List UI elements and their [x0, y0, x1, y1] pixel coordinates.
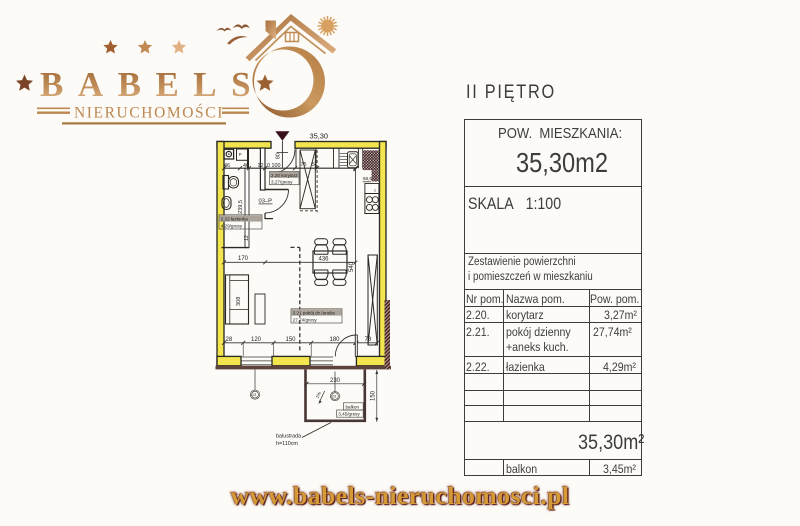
svg-text:2.20 korytarz: 2.20 korytarz [271, 173, 298, 178]
svg-text:balkon: balkon [346, 404, 360, 409]
svg-text:h=110cm: h=110cm [276, 441, 298, 447]
svg-text:170: 170 [238, 256, 249, 262]
svg-text:3,45/gresy: 3,45/gresy [338, 412, 360, 417]
svg-text:68,5: 68,5 [363, 176, 372, 181]
svg-text:28: 28 [226, 337, 233, 343]
svg-text:120: 120 [251, 337, 262, 343]
svg-text:2.21 pokój dz./aneks: 2.21 pokój dz./aneks [293, 311, 336, 316]
svg-text:NIERUCHOMOŚCI: NIERUCHOMOŚCI [74, 105, 224, 122]
svg-text:P: P [239, 152, 242, 157]
svg-text:balustrada: balustrada [276, 434, 301, 440]
svg-text:0 100: 0 100 [267, 163, 281, 169]
svg-text:z: z [374, 188, 376, 193]
svg-text:35,30: 35,30 [310, 132, 329, 141]
svg-text:3,27/gresy: 3,27/gresy [271, 179, 293, 184]
svg-text:308: 308 [236, 297, 242, 306]
svg-text:4,29/gresy: 4,29/gresy [221, 223, 243, 228]
svg-text:03: 03 [332, 395, 336, 399]
svg-text:436: 436 [319, 257, 330, 263]
svg-text:540: 540 [349, 261, 355, 272]
svg-text:12: 12 [244, 235, 250, 241]
svg-text:40: 40 [243, 163, 249, 169]
svg-text:239,5: 239,5 [238, 200, 244, 214]
svg-text:12: 12 [258, 163, 264, 169]
svg-text:80: 80 [276, 153, 282, 159]
svg-text:46: 46 [224, 163, 230, 169]
svg-text:2.22 łazienka: 2.22 łazienka [221, 217, 249, 222]
svg-text:27,74/gresy: 27,74/gresy [293, 317, 318, 322]
svg-text:180: 180 [330, 337, 341, 343]
svg-text:03: 03 [252, 393, 256, 397]
svg-text:1%: 1% [315, 391, 322, 399]
svg-text:150: 150 [286, 337, 297, 343]
svg-text:BABELS: BABELS [40, 65, 265, 104]
svg-text:150: 150 [370, 390, 376, 401]
